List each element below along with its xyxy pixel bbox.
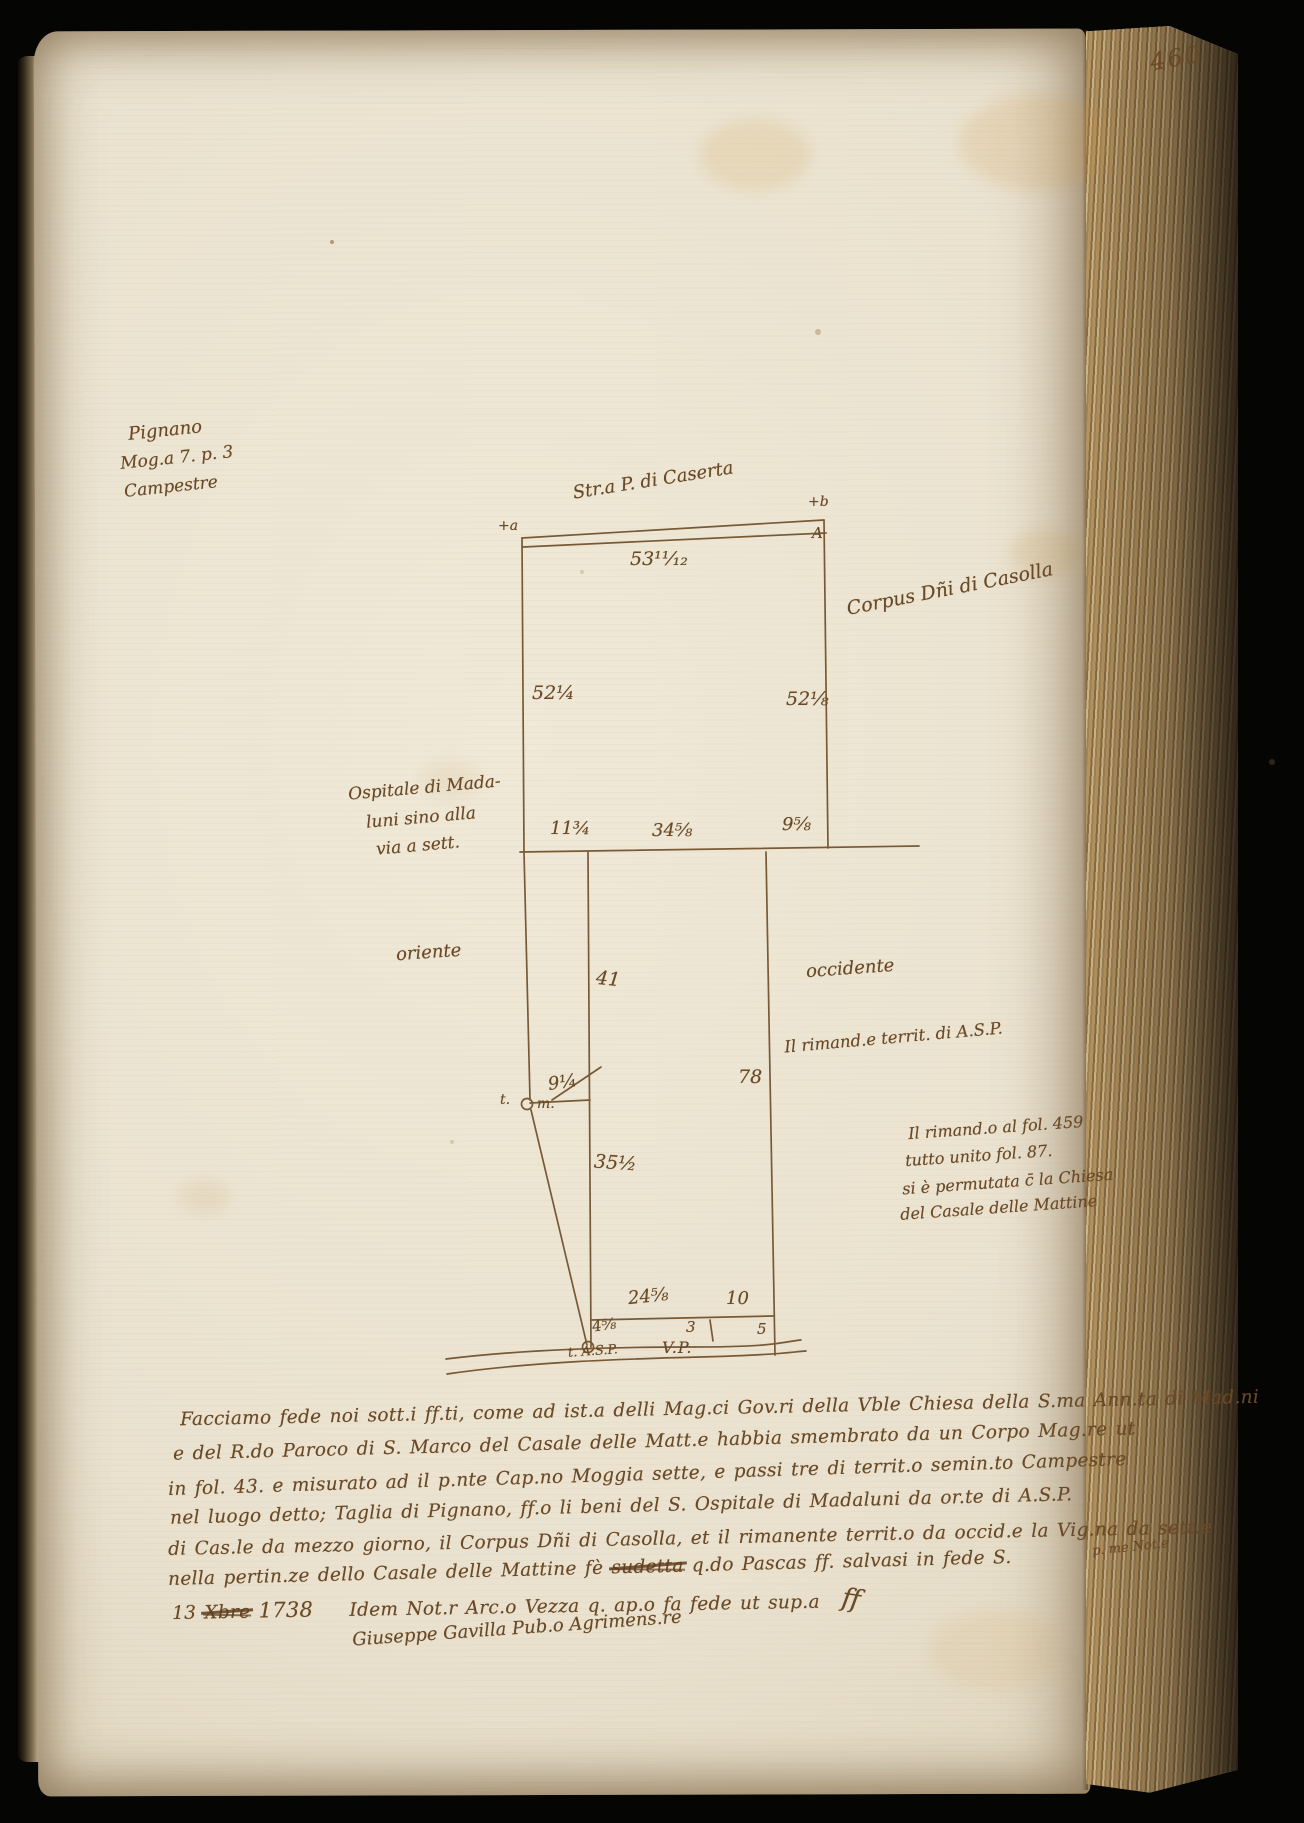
- measure-tick: 9¼: [547, 1070, 579, 1095]
- measure-inner-left: 11¾: [550, 818, 590, 839]
- terminus-mid-pre: t.: [500, 1092, 510, 1108]
- measure-inner-right: 9⅝: [782, 814, 811, 835]
- measure-right: 52⅛: [786, 688, 829, 710]
- terminus-mid-post: m.: [537, 1096, 555, 1112]
- attestation-date-year: 1738: [258, 1598, 313, 1623]
- attestation-date-day: 13: [172, 1603, 197, 1624]
- attestation-date-struck: Xbre: [204, 1602, 250, 1624]
- measure-edge-left: 4⅝: [591, 1314, 617, 1335]
- measure-left: 52¼: [532, 682, 575, 704]
- measure-edge-right: 5: [757, 1320, 767, 1338]
- road-bottom-label: V.P.: [662, 1338, 692, 1357]
- corner-mark-right: +b: [808, 494, 829, 510]
- measure-strip-right: 78: [738, 1066, 762, 1088]
- corner-letter-right: A: [812, 524, 823, 542]
- measure-strip-lower: 35½: [593, 1151, 637, 1176]
- measure-edge-mid: 3: [686, 1318, 696, 1336]
- measure-bottom-right: 10: [726, 1288, 749, 1309]
- attestation-block: Facciamo fede noi sott.i ff.ti, come ad …: [170, 1390, 1180, 1660]
- measure-strip-upper: 41: [595, 967, 621, 991]
- attestation-line6-post: q.do Pascas ff. salvasi in fede S.: [683, 1547, 1011, 1577]
- measure-inner-mid: 34⅝: [652, 820, 692, 841]
- notary-paraph-flourish: ﬀ: [840, 1583, 863, 1616]
- scanned-book-page: 460 Pignano Mog.a 7. p. 3 Campestre Str.…: [0, 0, 1304, 1823]
- measure-top: 53¹¹⁄₁₂: [630, 548, 688, 570]
- attestation-line6-pre: nella pertin.ze dello Casale delle Matti…: [168, 1557, 612, 1590]
- attestation-struck-word: sudetta: [611, 1556, 684, 1579]
- measure-bottom-left: 24⅝: [627, 1284, 669, 1309]
- corner-mark-left: +a: [498, 518, 518, 534]
